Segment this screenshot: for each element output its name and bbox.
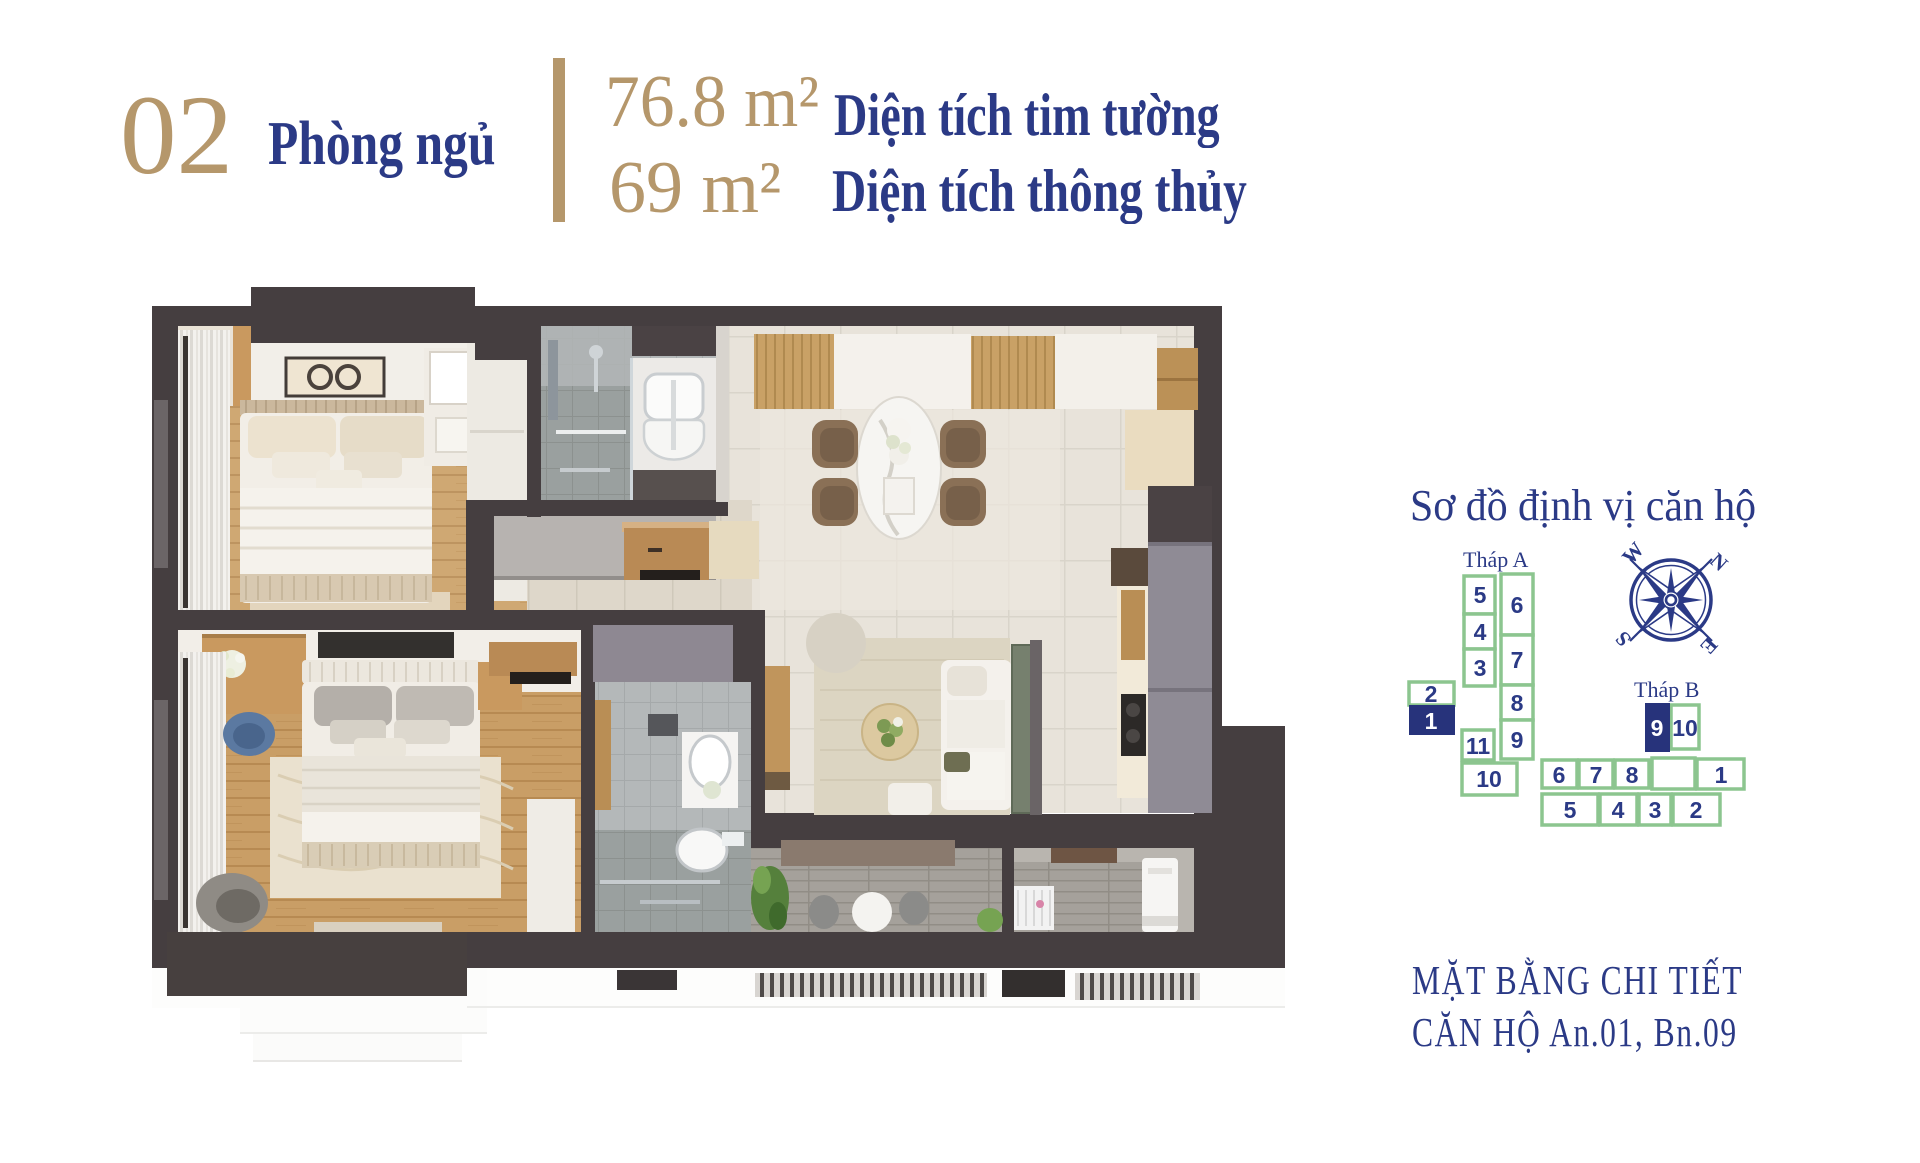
svg-text:3: 3	[1649, 797, 1662, 823]
svg-text:4: 4	[1474, 619, 1487, 645]
svg-text:11: 11	[1466, 733, 1491, 759]
svg-text:8: 8	[1511, 690, 1524, 716]
svg-text:9: 9	[1511, 727, 1524, 753]
svg-text:4: 4	[1612, 797, 1625, 823]
svg-text:9: 9	[1651, 715, 1664, 741]
svg-text:7: 7	[1590, 762, 1603, 788]
svg-text:1: 1	[1715, 762, 1728, 788]
svg-text:5: 5	[1474, 582, 1487, 608]
svg-text:Tháp A: Tháp A	[1463, 547, 1528, 572]
svg-text:N: N	[1705, 548, 1732, 576]
svg-text:3: 3	[1474, 655, 1487, 681]
svg-text:2: 2	[1690, 797, 1703, 823]
svg-text:S: S	[1610, 627, 1636, 652]
svg-text:5: 5	[1564, 797, 1577, 823]
svg-text:6: 6	[1553, 762, 1566, 788]
svg-text:Tháp B: Tháp B	[1634, 677, 1699, 702]
svg-text:10: 10	[1476, 766, 1502, 792]
svg-text:7: 7	[1511, 647, 1524, 673]
svg-text:8: 8	[1626, 762, 1639, 788]
svg-text:10: 10	[1672, 715, 1698, 741]
svg-text:W: W	[1617, 537, 1649, 569]
svg-text:1: 1	[1425, 708, 1438, 734]
svg-text:2: 2	[1425, 681, 1438, 707]
svg-text:6: 6	[1511, 592, 1524, 618]
svg-text:E: E	[1695, 633, 1722, 659]
